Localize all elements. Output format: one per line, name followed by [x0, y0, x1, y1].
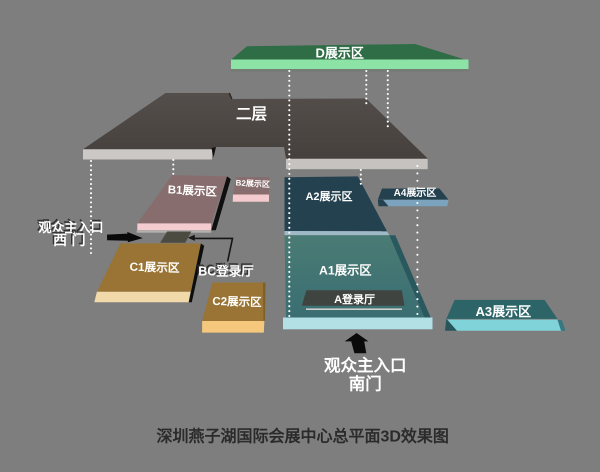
svg-text:A登录厅: A登录厅	[334, 292, 375, 306]
svg-text:观众主入口: 观众主入口	[324, 355, 407, 375]
svg-text:D展示区: D展示区	[316, 46, 364, 61]
svg-text:B1展示区: B1展示区	[167, 183, 217, 199]
svg-text:A4展示区: A4展示区	[394, 187, 437, 199]
svg-text:A2展示区: A2展示区	[305, 190, 352, 203]
svg-text:BC登录厅: BC登录厅	[198, 264, 254, 279]
svg-text:西: 西	[53, 232, 67, 248]
svg-text:门: 门	[72, 232, 86, 248]
svg-text:二层: 二层	[236, 105, 267, 123]
svg-text:C1展示区: C1展示区	[129, 261, 180, 275]
svg-text:南门: 南门	[349, 373, 382, 393]
svg-text:深圳燕子湖国际会展中心总平面3D效果图: 深圳燕子湖国际会展中心总平面3D效果图	[156, 427, 448, 446]
svg-text:A3展示区: A3展示区	[475, 304, 531, 319]
svg-text:C2展示区: C2展示区	[212, 295, 262, 309]
svg-text:B2展示区: B2展示区	[235, 178, 270, 189]
svg-text:A1展示区: A1展示区	[319, 263, 372, 277]
